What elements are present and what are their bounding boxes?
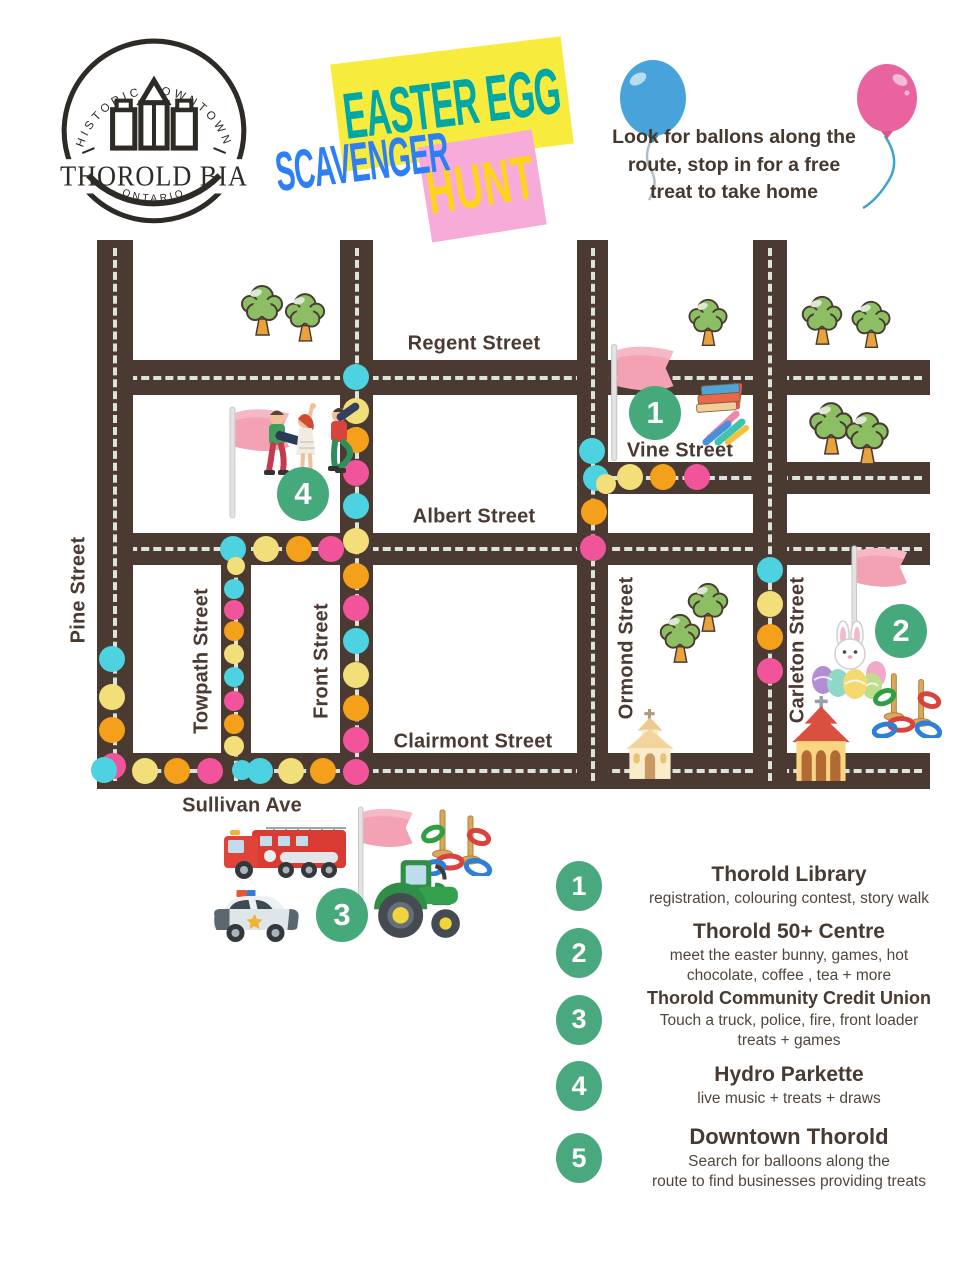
legend-item-5: 5Downtown ThoroldSearch for balloons alo… xyxy=(556,1124,952,1192)
street-label: Pine Street xyxy=(68,537,91,644)
easter-egg-hunt-poster: Regent StreetVine StreetAlbert StreetCla… xyxy=(0,0,960,1280)
route-dot xyxy=(343,695,369,721)
balloon-note-line: route, stop in for a free xyxy=(598,152,870,180)
legend-item-1: 1Thorold Libraryregistration, colouring … xyxy=(556,858,952,914)
legend-item-title: Hydro Parkette xyxy=(626,1063,952,1087)
legend-item-text: Thorold 50+ Centremeet the easter bunny,… xyxy=(626,920,952,986)
route-dot xyxy=(99,717,125,743)
legend-item-text: Hydro Parkettelive music + treats + draw… xyxy=(626,1063,952,1109)
route-dot xyxy=(757,591,783,617)
street-label: Albert Street xyxy=(413,506,536,529)
route-dot xyxy=(343,563,369,589)
balloon-note: Look for ballons along the route, stop i… xyxy=(598,124,870,207)
map-marker-2: 2 xyxy=(875,604,927,658)
legend-number-badge: 2 xyxy=(556,928,602,978)
legend-item-title: Thorold Library xyxy=(626,863,952,887)
street-label: Clairmont Street xyxy=(394,731,553,754)
legend-item-3: 3Thorold Community Credit UnionTouch a t… xyxy=(556,988,952,1051)
route-dot xyxy=(343,528,369,554)
route-dot xyxy=(99,646,125,672)
route-dot xyxy=(757,557,783,583)
logo-badge-icon: HISTORIC DOWNTOWN THOROLD BIA ONTARIO xyxy=(48,34,260,231)
street-label: Sullivan Ave xyxy=(182,795,302,818)
route-dot xyxy=(247,758,273,784)
route-dot xyxy=(224,736,244,756)
route-dot xyxy=(227,557,245,575)
tree-icon xyxy=(686,297,730,349)
street-label: Front Street xyxy=(311,603,334,719)
route-dot xyxy=(580,535,606,561)
legend-item-desc: registration, colouring contest, story w… xyxy=(626,889,952,909)
church-red-icon xyxy=(784,696,858,782)
route-dot xyxy=(224,714,244,734)
legend-item-desc: meet the easter bunny, games, hot xyxy=(626,946,952,966)
route-dot xyxy=(224,579,244,599)
route-dot xyxy=(343,364,369,390)
route-dot xyxy=(596,474,616,494)
legend-item-text: Thorold Libraryregistration, colouring c… xyxy=(626,863,952,909)
fire-truck-icon xyxy=(220,822,352,882)
tree-icon xyxy=(240,283,284,339)
legend-item-text: Thorold Community Credit UnionTouch a tr… xyxy=(626,988,952,1051)
tree-icon xyxy=(844,410,890,468)
route-dot xyxy=(757,624,783,650)
map-marker-1: 1 xyxy=(629,386,681,440)
route-dot xyxy=(343,759,369,785)
route-dot xyxy=(684,464,710,490)
route-dot xyxy=(224,621,244,641)
route-dot xyxy=(343,595,369,621)
route-dot xyxy=(343,662,369,688)
route-dot xyxy=(253,536,279,562)
legend-number-badge: 1 xyxy=(556,861,602,911)
police-car-icon xyxy=(208,884,304,946)
route-dot xyxy=(579,438,605,464)
legend-item-text: Downtown ThoroldSearch for balloons alon… xyxy=(626,1124,952,1192)
route-dot xyxy=(343,727,369,753)
route-dot xyxy=(197,758,223,784)
thorold-bia-logo: HISTORIC DOWNTOWN THOROLD BIA ONTARIO xyxy=(48,34,260,232)
route-dot xyxy=(278,758,304,784)
books-crayons-icon xyxy=(680,382,756,446)
street-label: Towpath Street xyxy=(191,588,214,734)
route-dot xyxy=(132,758,158,784)
route-dot xyxy=(343,628,369,654)
legend-item-title: Thorold Community Credit Union xyxy=(626,988,952,1009)
legend-item-2: 2Thorold 50+ Centremeet the easter bunny… xyxy=(556,920,952,986)
street-label: Regent Street xyxy=(408,333,541,356)
route-dot xyxy=(757,658,783,684)
route-dot xyxy=(164,758,190,784)
road-carleton-street xyxy=(753,240,787,789)
route-dot xyxy=(224,600,244,620)
route-dot xyxy=(99,684,125,710)
route-dot xyxy=(310,758,336,784)
ring-toss-icon xyxy=(872,668,942,738)
road-regent-street xyxy=(97,360,930,395)
route-dot xyxy=(224,691,244,711)
route-dot xyxy=(286,536,312,562)
legend-item-desc: route to find businesses providing treat… xyxy=(626,1172,952,1192)
map-marker-4: 4 xyxy=(277,467,329,521)
legend-number-badge: 3 xyxy=(556,995,602,1045)
balloon-note-line: Look for ballons along the xyxy=(598,124,870,152)
street-label: Ormond Street xyxy=(616,577,639,720)
legend-item-title: Downtown Thorold xyxy=(626,1124,952,1150)
tree-icon xyxy=(800,294,844,348)
church-beige-icon xyxy=(616,708,684,780)
tree-icon xyxy=(284,291,326,345)
balloon-note-line: treat to take home xyxy=(598,179,870,207)
tree-icon xyxy=(850,299,892,351)
tractor-icon xyxy=(372,856,464,944)
legend-item-desc: treats + games xyxy=(626,1031,952,1051)
legend-number-badge: 5 xyxy=(556,1133,602,1183)
route-dot xyxy=(581,499,607,525)
route-dot xyxy=(224,667,244,687)
route-dot xyxy=(318,536,344,562)
legend-item-desc: Touch a truck, police, fire, front loade… xyxy=(626,1011,952,1031)
tree-icon xyxy=(658,612,702,666)
legend-item-title: Thorold 50+ Centre xyxy=(626,920,952,944)
map-marker-3: 3 xyxy=(316,888,368,942)
legend-item-desc: live music + treats + draws xyxy=(626,1089,952,1109)
legend-item-desc: chocolate, coffee , tea + more xyxy=(626,966,952,986)
route-dot xyxy=(91,757,117,783)
legend-number-badge: 4 xyxy=(556,1061,602,1111)
legend-item-desc: Search for balloons along the xyxy=(626,1152,952,1172)
legend-item-4: 4Hydro Parkettelive music + treats + dra… xyxy=(556,1058,952,1114)
route-dot xyxy=(224,644,244,664)
